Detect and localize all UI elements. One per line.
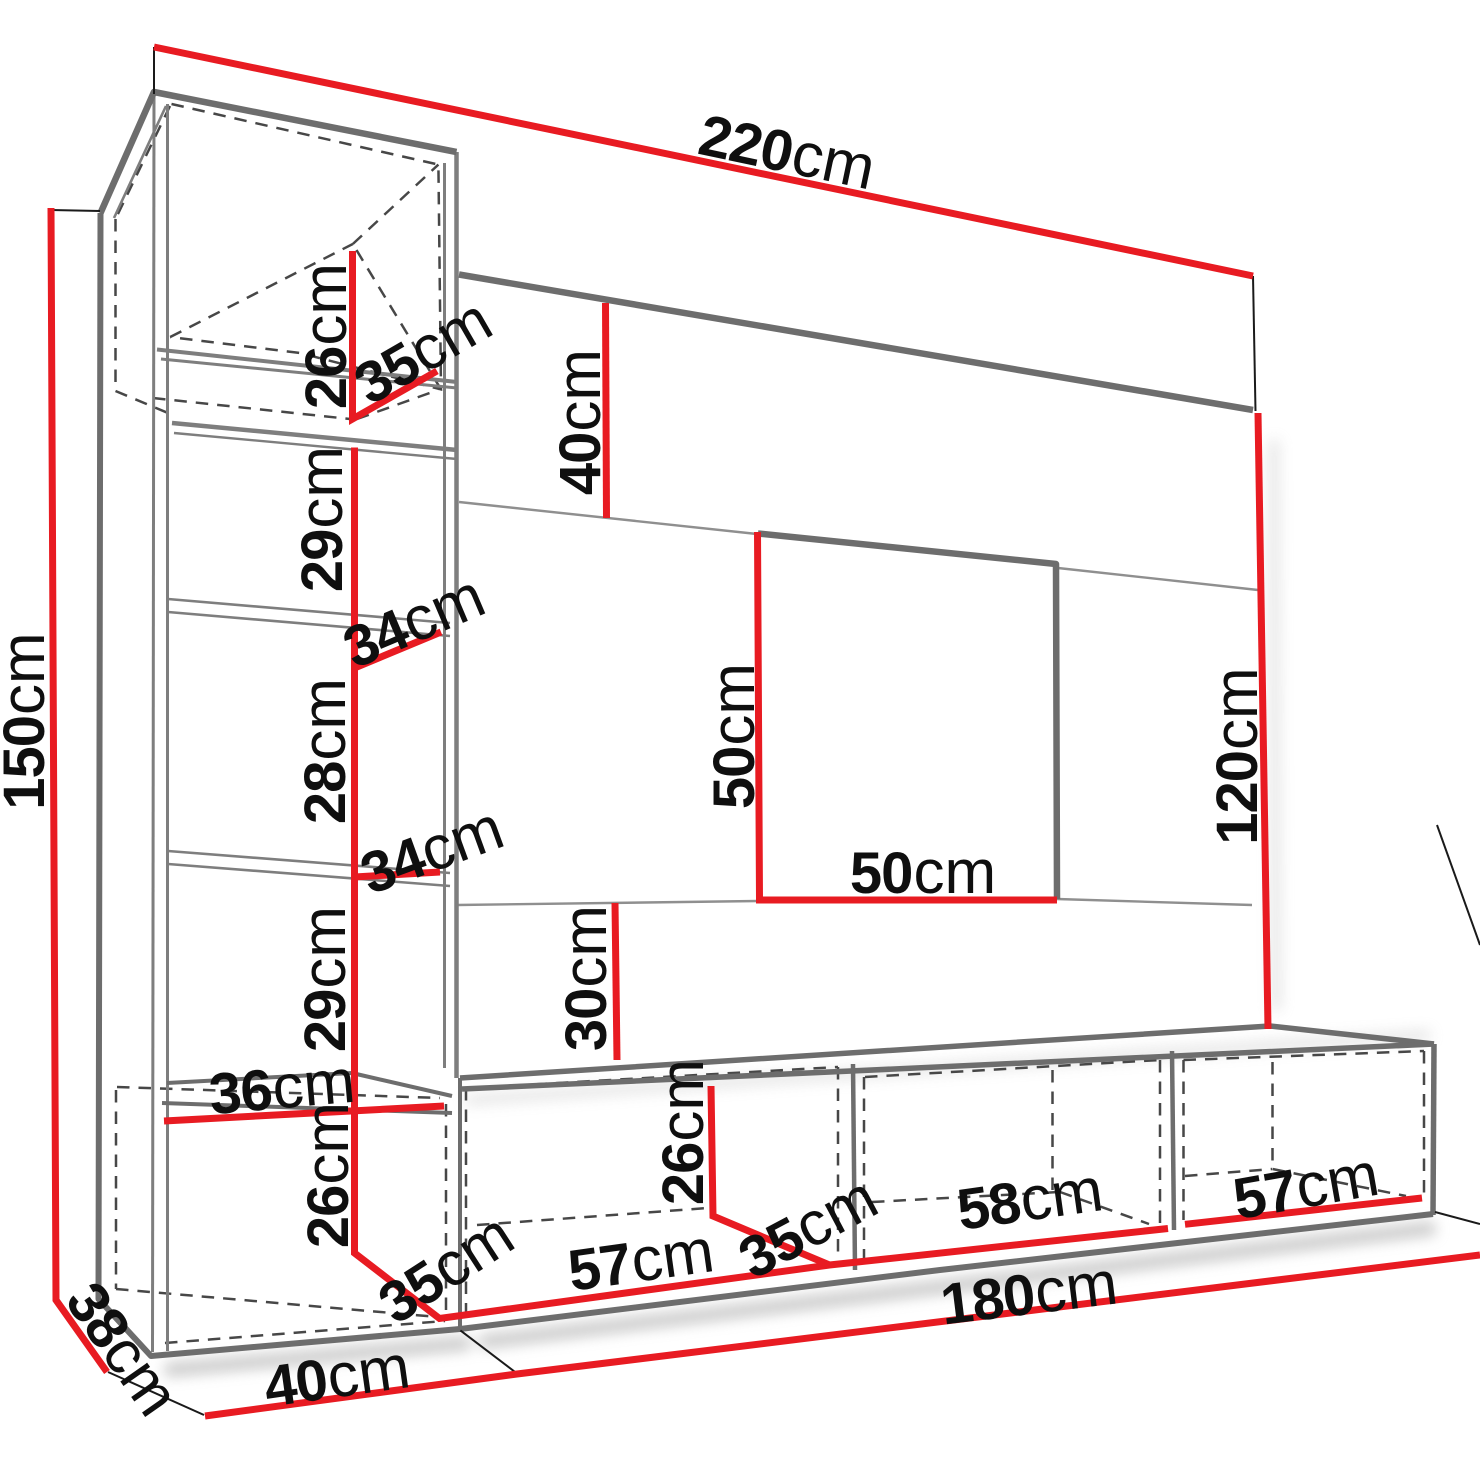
svg-text:26cm: 26cm: [648, 1059, 717, 1205]
svg-text:150cm: 150cm: [0, 632, 58, 809]
svg-text:120cm: 120cm: [1202, 667, 1271, 844]
svg-text:28cm: 28cm: [290, 678, 359, 824]
svg-text:26cm: 26cm: [291, 263, 360, 409]
svg-text:29cm: 29cm: [290, 906, 359, 1052]
svg-text:29cm: 29cm: [287, 446, 356, 592]
svg-text:30cm: 30cm: [551, 905, 620, 1051]
svg-text:50cm: 50cm: [850, 838, 996, 907]
svg-text:40cm: 40cm: [545, 349, 614, 495]
svg-text:50cm: 50cm: [699, 663, 768, 809]
svg-text:26cm: 26cm: [293, 1102, 362, 1248]
